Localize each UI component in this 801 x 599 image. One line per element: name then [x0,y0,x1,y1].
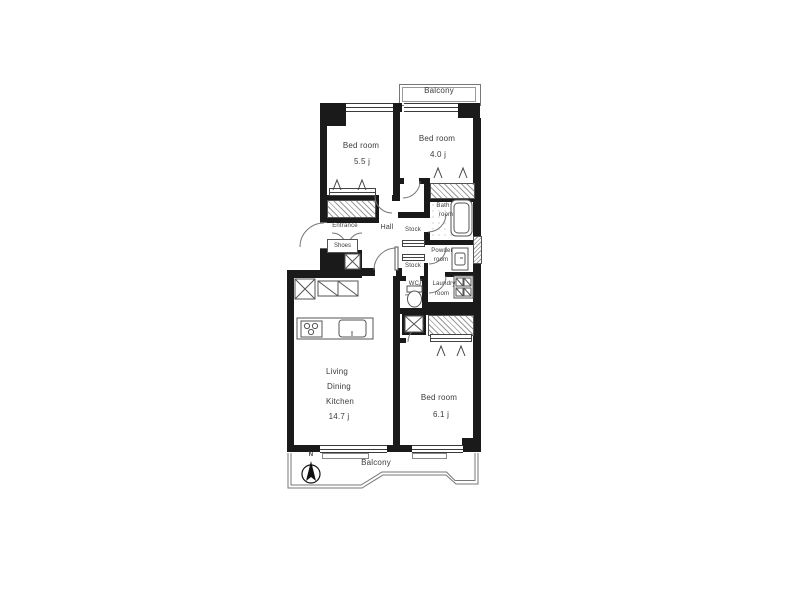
label-wc: WC [409,281,419,287]
label-hall: Hall [381,224,394,231]
label-bedroom2-size: 4.0 j [430,150,446,159]
north-arrow-icon [302,461,320,483]
label-stock2: Stock [405,263,421,269]
label-laundry-1: Laundry [432,281,455,287]
label-compass-n: N [309,452,314,458]
label-bedroom3-size: 6.1 j [433,410,449,419]
label-bedroom2-name: Bed room [419,134,455,143]
label-bedroom3-name: Bed room [421,393,457,402]
label-bedroom1-size: 5.5 j [354,157,370,166]
label-shoes: Shoes [334,243,351,249]
label-entrance: Entrance [332,223,358,229]
label-powder-2: room [434,257,448,263]
floor-plan: Balcony Bed room 5.5 j Bed room 4.0 j Ba… [0,0,801,599]
label-balcony-top: Balcony [424,86,454,95]
toilet-icon [407,286,422,307]
label-ldk-dining: Dining [327,382,351,391]
label-stock1: Stock [405,227,421,233]
label-powder-1: Powder [431,248,453,254]
label-ldk-kitchen: Kitchen [326,397,354,406]
shoes-cabinet: Shoes [327,239,358,253]
label-ldk-size: 14.7 j [329,412,350,421]
label-ldk-living: Living [326,367,348,376]
stove-icon [301,321,322,337]
washing-machine-icon [454,276,473,298]
door-leaf [395,247,398,270]
kitchen-sink-icon [339,320,366,337]
pipe-space-icon [405,316,423,332]
label-balcony-bottom: Balcony [361,458,391,467]
fixtures-layer [0,0,801,599]
refrigerator-space-icon [295,279,315,299]
label-bathroom-1: Bath [436,203,449,209]
bathtub-icon [451,200,472,236]
label-bathroom-2: room [439,212,453,218]
cupboard-icon [318,281,358,296]
label-bedroom1-name: Bed room [343,141,379,150]
pipe-space-icon [345,254,360,269]
label-laundry-2: room [435,291,449,297]
vanity-sink-icon [452,248,468,270]
